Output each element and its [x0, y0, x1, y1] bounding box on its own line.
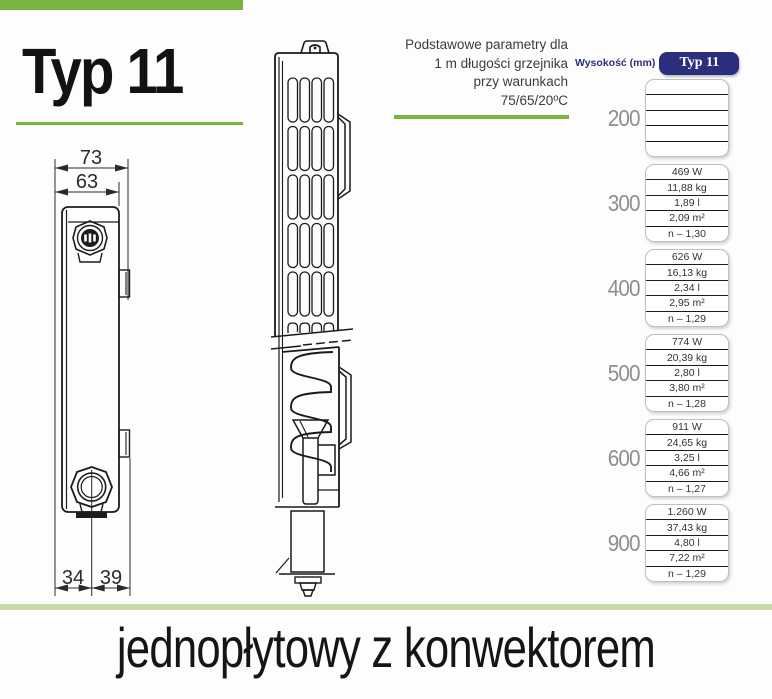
spec-block: 469 W 11,88 kg 1,89 l 2,09 m² n – 1,30 — [645, 164, 729, 242]
top-valve-fitting — [73, 221, 107, 262]
height-label: 300 — [582, 190, 645, 217]
spec-cell-weight: 24,65 kg — [646, 435, 728, 450]
spec-cell-exponent — [646, 142, 728, 156]
height-column-header: Wysokość (mm) — [575, 57, 659, 69]
spec-block: 774 W 20,39 kg 2,80 l 3,80 m² n – 1,28 — [645, 334, 729, 412]
spec-cell-power: 469 W — [646, 165, 728, 180]
spec-cell-volume: 3,25 l — [646, 451, 728, 466]
air-vent-cap — [301, 41, 329, 53]
drain-plug — [295, 577, 321, 596]
dim-label-outer-width: 73 — [80, 147, 102, 169]
spec-row-400: 400 626 W 16,13 kg 2,34 l 2,95 m² n – 1,… — [575, 249, 729, 327]
catalog-page: Typ 11 Podstawowe parametry dla 1 m dług… — [0, 0, 772, 699]
params-note-underline — [394, 115, 569, 119]
spec-row-600: 600 911 W 24,65 kg 3,25 l 4,66 m² n – 1,… — [575, 419, 729, 497]
spec-cell-surface: 2,95 m² — [646, 296, 728, 311]
dim-label-bottom-right: 39 — [100, 567, 122, 589]
wall-bracket-lower — [339, 367, 351, 449]
spec-cell-volume: 2,34 l — [646, 281, 728, 296]
upper-panel-outline — [275, 53, 338, 336]
spec-cell-surface: 2,09 m² — [646, 211, 728, 226]
spec-cell-exponent: n – 1,28 — [646, 397, 728, 411]
spec-block: 911 W 24,65 kg 3,25 l 4,66 m² n – 1,27 — [645, 419, 729, 497]
spec-cell-volume — [646, 111, 728, 126]
spec-cell-power — [646, 80, 728, 95]
height-label: 600 — [582, 445, 645, 472]
height-label: 900 — [582, 530, 645, 557]
spec-block: 1.260 W 37,43 kg 4,80 l 7,22 m² n – 1,29 — [645, 504, 729, 582]
spec-cell-exponent: n – 1,30 — [646, 227, 728, 241]
spec-cell-power: 626 W — [646, 250, 728, 265]
spec-cell-weight: 20,39 kg — [646, 350, 728, 365]
spec-row-900: 900 1.260 W 37,43 kg 4,80 l 7,22 m² n – … — [575, 504, 729, 582]
radiator-side-profile-drawing — [255, 30, 375, 600]
page-title: Typ 11 — [22, 34, 183, 108]
spec-cell-volume: 4,80 l — [646, 536, 728, 551]
spec-cell-power: 774 W — [646, 335, 728, 350]
spec-cell-exponent: n – 1,29 — [646, 312, 728, 326]
spec-cell-volume: 2,80 l — [646, 366, 728, 381]
footer-caption-text: jednopłytowy z konwektorem — [117, 615, 655, 680]
spec-row-200: 200 — [575, 79, 729, 157]
type-column-badge: Typ 11 — [659, 52, 739, 75]
spec-table-header: Wysokość (mm) Typ 11 — [575, 51, 772, 75]
spec-cell-exponent: n – 1,29 — [646, 567, 728, 581]
green-accent-bar-top — [0, 0, 243, 10]
radiator-cross-section-drawing: 73 63 34 39 — [40, 140, 160, 600]
spec-row-300: 300 469 W 11,88 kg 1,89 l 2,09 m² n – 1,… — [575, 164, 729, 242]
spec-block — [645, 79, 729, 157]
spec-cell-surface: 7,22 m² — [646, 551, 728, 566]
grille-slots — [288, 78, 334, 333]
height-label: 400 — [582, 275, 645, 302]
green-accent-bar-bottom — [0, 604, 772, 610]
spec-cell-power: 911 W — [646, 420, 728, 435]
height-label: 200 — [582, 105, 645, 132]
spec-cell-volume: 1,89 l — [646, 196, 728, 211]
spec-cell-surface: 4,66 m² — [646, 466, 728, 481]
spec-cell-surface: 3,80 m² — [646, 381, 728, 396]
spec-row-500: 500 774 W 20,39 kg 2,80 l 3,80 m² n – 1,… — [575, 334, 729, 412]
height-label: 500 — [582, 360, 645, 387]
dim-label-bottom-left: 34 — [62, 567, 84, 589]
wall-bracket-upper — [338, 114, 350, 199]
spec-cell-weight: 16,13 kg — [646, 265, 728, 280]
footer-caption: jednopłytowy z konwektorem — [0, 615, 772, 680]
spec-block: 626 W 16,13 kg 2,34 l 2,95 m² n – 1,29 — [645, 249, 729, 327]
spec-cell-power: 1.260 W — [646, 505, 728, 520]
spec-cell-surface — [646, 126, 728, 141]
spec-cell-weight: 11,88 kg — [646, 180, 728, 195]
spec-table: 200 300 469 W 11,88 kg 1,89 l 2,09 m² n … — [575, 79, 729, 582]
spec-cell-exponent: n – 1,27 — [646, 482, 728, 496]
spec-cell-weight: 37,43 kg — [646, 520, 728, 535]
title-underline — [16, 122, 243, 125]
convector-fin-cutaway — [282, 347, 339, 507]
dim-label-inner-width: 63 — [76, 171, 98, 193]
bottom-manifold — [275, 507, 339, 574]
spec-cell-weight — [646, 95, 728, 110]
